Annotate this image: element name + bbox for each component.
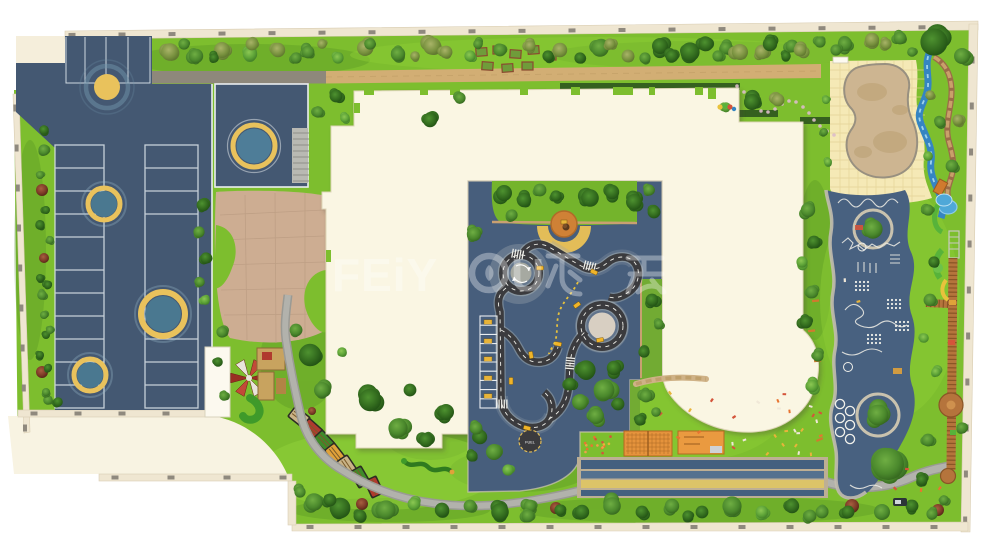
svg-text:U: U <box>511 249 544 301</box>
svg-text:FEiY: FEiY <box>332 249 438 301</box>
svg-text:FUEL: FUEL <box>525 441 535 445</box>
